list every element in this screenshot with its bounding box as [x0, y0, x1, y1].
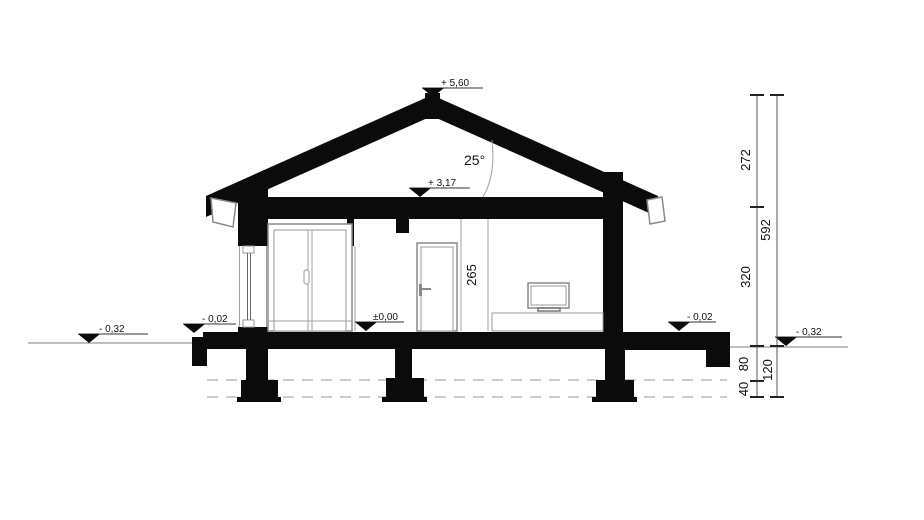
ridge [425, 93, 440, 119]
dim-overall-label: 592 [758, 219, 773, 241]
gutter-right [647, 197, 665, 224]
level-triangle-icon [409, 188, 431, 197]
tv-stand [538, 308, 560, 311]
terrace-slab-right [623, 335, 712, 350]
foundation-left [237, 349, 281, 402]
ceiling-beam [238, 197, 623, 219]
level-triangle-icon [775, 337, 797, 346]
level-marker-ground-left: - 0,32 [78, 324, 148, 343]
dim-storey-label: 320 [738, 266, 753, 288]
foundation-center [382, 349, 427, 402]
dim-footing-label: 40 [736, 382, 751, 396]
dim-attic-label: 272 [738, 149, 753, 171]
roof-pitch-label: 25° [464, 152, 485, 168]
window-section [240, 246, 267, 327]
tv-cabinet [492, 313, 603, 331]
interior-door [417, 243, 457, 331]
room-height-dimension: 265 [461, 219, 488, 331]
level-triangle-icon [668, 322, 690, 331]
patio-door-handle-icon [304, 270, 309, 284]
gutter-left [211, 198, 236, 227]
soil-layer-lines [207, 380, 727, 397]
ceiling-level-label: + 3,17 [428, 178, 457, 189]
terrace-step-left [192, 337, 207, 366]
door-handle-icon [419, 284, 422, 296]
level-marker-ceiling: + 3,17 [409, 178, 470, 197]
dimension-chain: 272 320 80 40 592 120 [736, 95, 784, 397]
level-marker-ground-right: - 0,32 [775, 327, 842, 346]
terrace-step-right [706, 341, 730, 367]
house-cross-section: 25° 265 + 5,60 + 3,17 [0, 0, 924, 520]
level-marker-floor: ±0,00 [355, 312, 404, 331]
room-height-label: 265 [464, 264, 479, 286]
level-marker-peak: + 5,60 [422, 78, 483, 97]
level-triangle-icon [78, 334, 100, 343]
level-triangle-icon [183, 324, 205, 333]
level-marker-terrace-right: - 0,02 [668, 312, 716, 331]
dim-plinth-label: 80 [736, 357, 751, 371]
patio-door [268, 224, 352, 331]
dimension-ticks [750, 95, 784, 397]
floor-level-label: ±0,00 [373, 312, 398, 323]
angle-arc [483, 140, 493, 197]
dim-below-ground-label: 120 [760, 359, 775, 381]
section-drawing: 25° 265 + 5,60 + 3,17 [0, 0, 924, 520]
level-marker-terrace-left: - 0,02 [183, 314, 236, 333]
level-triangle-icon [355, 322, 377, 331]
terrace-right-level-label: - 0,02 [687, 312, 713, 323]
peak-level-label: + 5,60 [441, 78, 470, 89]
dropped-beam [396, 219, 409, 233]
foundation-right [592, 349, 637, 402]
ground-right-level-label: - 0,32 [796, 327, 822, 338]
terrace-left-level-label: - 0,02 [202, 314, 228, 325]
tv [528, 283, 569, 311]
ground-left-level-label: - 0,32 [99, 324, 125, 335]
